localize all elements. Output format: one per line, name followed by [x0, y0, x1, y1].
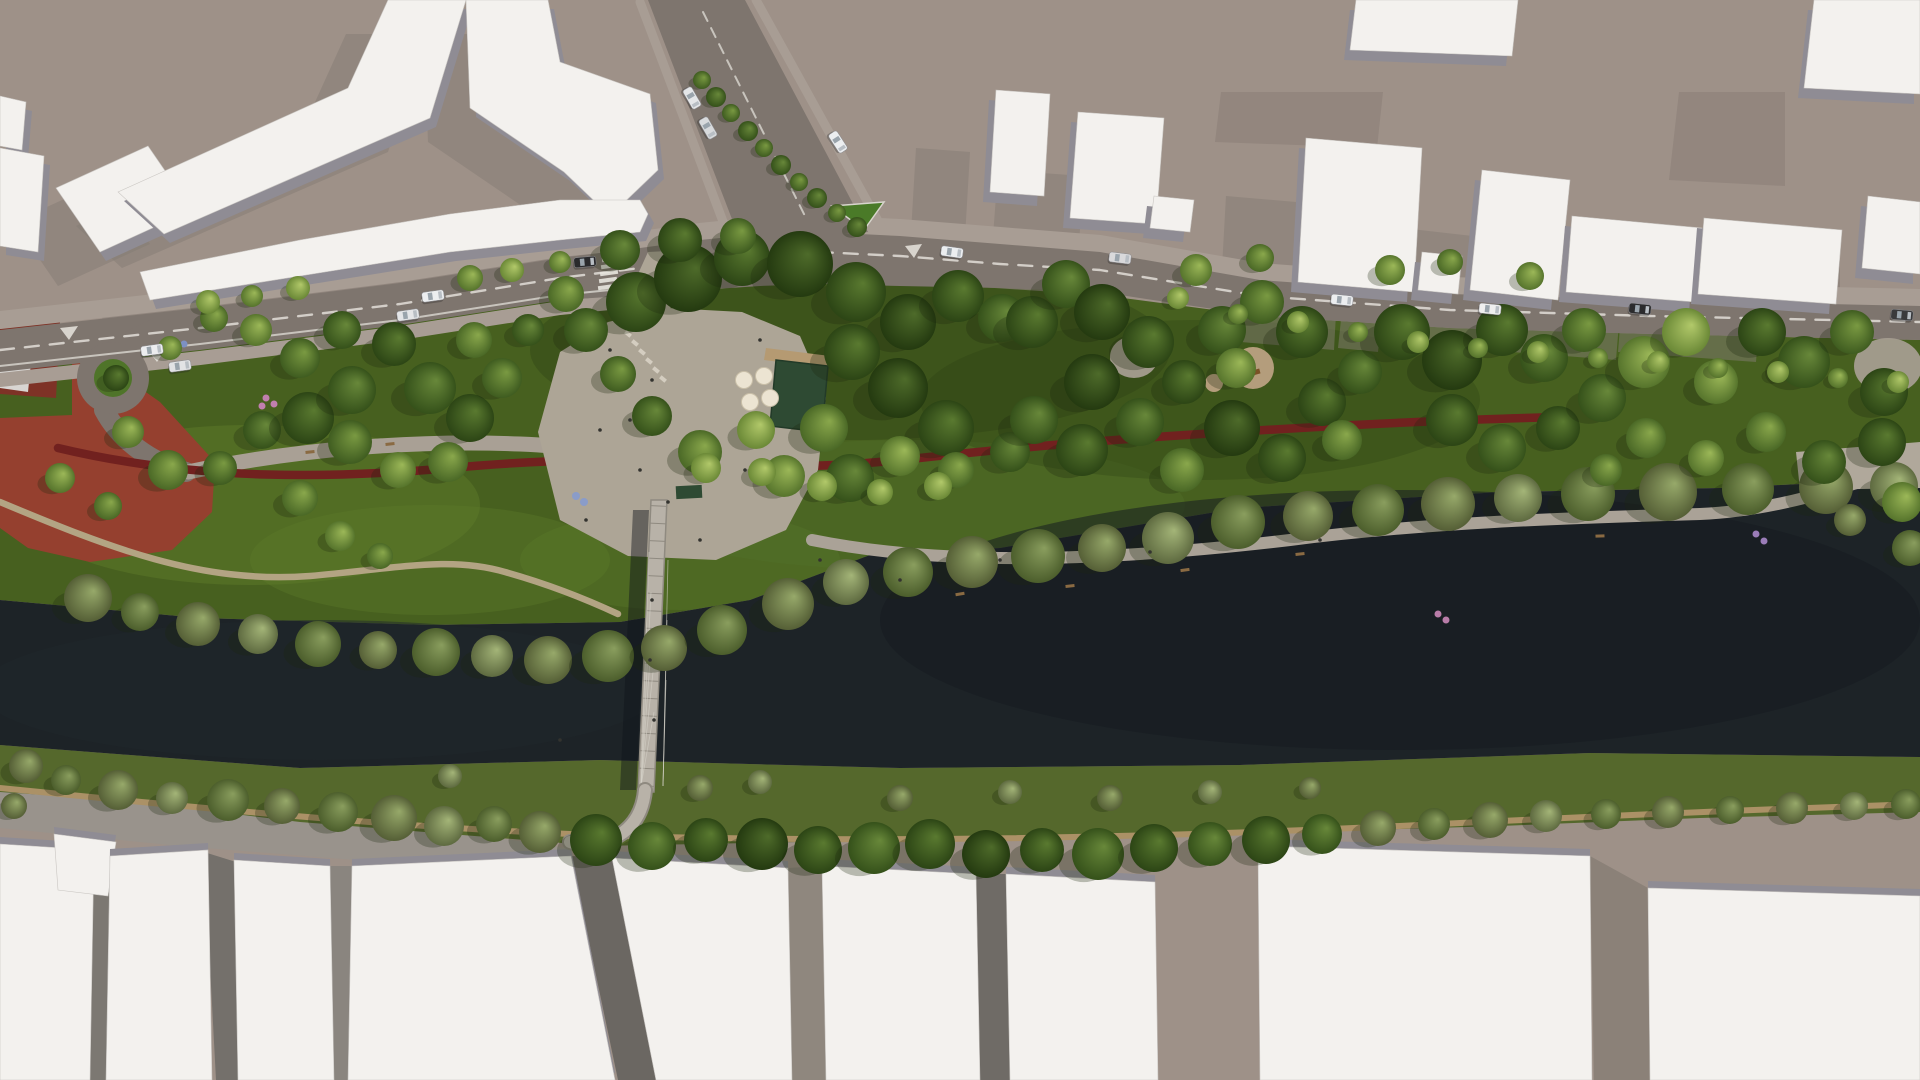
tree — [519, 811, 561, 853]
tree — [755, 139, 773, 157]
tree — [476, 806, 512, 842]
tree — [1516, 262, 1544, 290]
tree — [1828, 368, 1848, 388]
tree — [1647, 351, 1669, 373]
tree — [1204, 400, 1260, 456]
tree — [767, 231, 833, 297]
building-roof — [1862, 196, 1920, 274]
umbrella — [756, 368, 773, 385]
tree — [1074, 284, 1130, 340]
tree — [1360, 810, 1396, 846]
tree — [848, 822, 900, 874]
tree — [1188, 822, 1232, 866]
tree — [1437, 249, 1463, 275]
tree — [372, 322, 416, 366]
car — [1329, 294, 1353, 308]
tree — [1078, 524, 1126, 572]
tree — [1591, 799, 1621, 829]
tree — [736, 818, 788, 870]
tree — [424, 806, 464, 846]
tree — [328, 366, 376, 414]
tree — [238, 614, 278, 654]
tree — [51, 765, 81, 795]
tree — [404, 362, 456, 414]
tree — [691, 453, 721, 483]
tree — [800, 404, 848, 452]
building-roof — [990, 90, 1050, 196]
tree — [962, 830, 1010, 878]
tree — [1716, 796, 1744, 824]
tree — [524, 636, 572, 684]
tree — [156, 782, 188, 814]
tree — [103, 365, 129, 391]
tree — [286, 276, 310, 300]
building-roof — [822, 866, 980, 1080]
aerial-riverfront-masterplan-render — [0, 0, 1920, 1080]
building-roof — [0, 96, 26, 150]
street-gap — [788, 866, 826, 1080]
tree — [1834, 504, 1866, 536]
building-roof — [1566, 216, 1702, 302]
tree — [1375, 255, 1405, 285]
tree — [9, 749, 43, 783]
tree — [1494, 474, 1542, 522]
car — [1889, 309, 1913, 323]
tree — [203, 451, 237, 485]
tree — [722, 104, 740, 122]
tree — [1802, 440, 1846, 484]
tree — [1162, 360, 1206, 404]
street-gap — [976, 874, 1010, 1080]
tree — [512, 314, 544, 346]
tree — [1010, 396, 1058, 444]
tree — [1299, 777, 1321, 799]
tree — [264, 788, 300, 824]
tree — [148, 450, 188, 490]
tree — [1626, 418, 1666, 458]
tree — [748, 770, 772, 794]
tree — [905, 819, 955, 869]
tree — [824, 324, 880, 380]
tree — [1722, 463, 1774, 515]
building-roof — [1804, 0, 1920, 94]
tree — [1767, 361, 1789, 383]
tree — [697, 605, 747, 655]
tree — [828, 204, 846, 222]
tree — [328, 420, 372, 464]
tree — [1198, 780, 1222, 804]
tree — [1426, 394, 1478, 446]
tree — [280, 338, 320, 378]
tree — [628, 822, 676, 870]
tree — [1116, 398, 1164, 446]
tree — [94, 492, 122, 520]
tree — [1258, 434, 1306, 482]
tree — [1228, 304, 1248, 324]
tree — [207, 779, 249, 821]
tree — [500, 258, 524, 282]
tree — [241, 285, 263, 307]
tree — [600, 230, 640, 270]
tree — [868, 358, 928, 418]
car — [1477, 303, 1501, 317]
umbrella — [736, 372, 753, 389]
tree — [1, 793, 27, 819]
tree — [687, 775, 713, 801]
tree — [1472, 802, 1508, 838]
tree — [45, 463, 75, 493]
tree — [582, 630, 634, 682]
tree — [548, 276, 584, 312]
tree — [457, 265, 483, 291]
building-roof — [54, 834, 116, 896]
tree — [367, 543, 393, 569]
building-roof — [0, 148, 44, 252]
umbrella — [742, 394, 759, 411]
tree — [1020, 828, 1064, 872]
tree — [1287, 311, 1309, 333]
aerial-render-canvas — [0, 0, 1920, 1080]
car — [573, 256, 597, 270]
tree — [64, 574, 112, 622]
building-roof — [1258, 846, 1592, 1080]
tree — [1738, 308, 1786, 356]
tree — [641, 625, 687, 671]
tree — [1527, 341, 1549, 363]
tree — [823, 559, 869, 605]
tree — [1688, 440, 1724, 476]
tree — [1064, 354, 1120, 410]
tree — [826, 262, 886, 322]
tree — [1122, 316, 1174, 368]
tree — [1840, 792, 1868, 820]
tree — [632, 396, 672, 436]
car — [1627, 303, 1651, 317]
tree — [412, 628, 460, 676]
tree — [295, 621, 341, 667]
tree — [771, 155, 791, 175]
tree — [359, 631, 397, 669]
tree — [196, 290, 220, 314]
street-gap — [1590, 856, 1650, 1080]
tree — [549, 251, 571, 273]
tree — [748, 458, 776, 486]
tree — [1468, 338, 1488, 358]
tree — [282, 480, 318, 516]
tree — [1348, 322, 1368, 342]
tree — [1887, 371, 1909, 393]
tree — [794, 826, 842, 874]
building-roof — [1350, 0, 1518, 56]
building-roof — [1698, 218, 1842, 304]
tree — [998, 780, 1022, 804]
tree — [600, 356, 636, 392]
tree — [1478, 424, 1526, 472]
tree — [847, 217, 867, 237]
tree — [1421, 477, 1475, 531]
tree — [1858, 418, 1906, 466]
tree — [918, 400, 974, 456]
tree — [1097, 785, 1123, 811]
tree — [720, 218, 756, 254]
tree — [1283, 491, 1333, 541]
tree — [240, 314, 272, 346]
tree — [706, 87, 726, 107]
tree — [1746, 412, 1786, 452]
building-roof — [1150, 196, 1194, 232]
kiosk — [676, 485, 703, 499]
tree — [1830, 310, 1874, 354]
tree — [325, 521, 355, 551]
tree — [807, 188, 827, 208]
tree — [1352, 484, 1404, 536]
tree — [438, 764, 462, 788]
tree — [880, 436, 920, 476]
tree — [1322, 420, 1362, 460]
tree — [1588, 348, 1608, 368]
tree — [1418, 808, 1450, 840]
tree — [1242, 816, 1290, 864]
tree — [1652, 796, 1684, 828]
tree — [1160, 448, 1204, 492]
tree — [323, 311, 361, 349]
building-roof — [348, 856, 615, 1080]
tree — [867, 479, 893, 505]
tree — [428, 442, 468, 482]
tree — [887, 785, 913, 811]
tree — [1142, 512, 1194, 564]
tree — [112, 416, 144, 448]
building-roof — [1006, 874, 1158, 1080]
tree — [1246, 244, 1274, 272]
tree — [1216, 348, 1256, 388]
tree — [1662, 308, 1710, 356]
tree — [1130, 824, 1178, 872]
tree — [924, 472, 952, 500]
tree — [762, 578, 814, 630]
tree — [371, 795, 417, 841]
tree — [1590, 454, 1622, 486]
tree — [807, 471, 837, 501]
tree — [883, 547, 933, 597]
tree — [570, 814, 622, 866]
tree — [564, 308, 608, 352]
tree — [737, 411, 775, 449]
tree — [1708, 358, 1728, 378]
tree — [1011, 529, 1065, 583]
tree — [1776, 792, 1808, 824]
tree — [471, 635, 513, 677]
tree — [1407, 331, 1429, 353]
tree — [1180, 254, 1212, 286]
building-roof — [1648, 888, 1920, 1080]
tree — [790, 173, 808, 191]
tree — [1530, 800, 1562, 832]
tree — [98, 770, 138, 810]
tree — [1167, 287, 1189, 309]
tree — [1056, 424, 1108, 476]
tree — [693, 71, 711, 89]
tree — [482, 358, 522, 398]
tree — [318, 792, 358, 832]
tree — [946, 536, 998, 588]
tree — [658, 218, 702, 262]
tree — [1072, 828, 1124, 880]
tree — [1891, 789, 1920, 819]
tree — [176, 602, 220, 646]
tree — [456, 322, 492, 358]
umbrella — [762, 390, 779, 407]
tree — [380, 452, 416, 488]
building-roof — [234, 860, 334, 1080]
tree — [1211, 495, 1265, 549]
tree — [1562, 308, 1606, 352]
tree — [684, 818, 728, 862]
tree — [1302, 814, 1342, 854]
tree — [121, 593, 159, 631]
building-roof — [106, 850, 212, 1080]
tree — [446, 394, 494, 442]
tree — [738, 121, 758, 141]
